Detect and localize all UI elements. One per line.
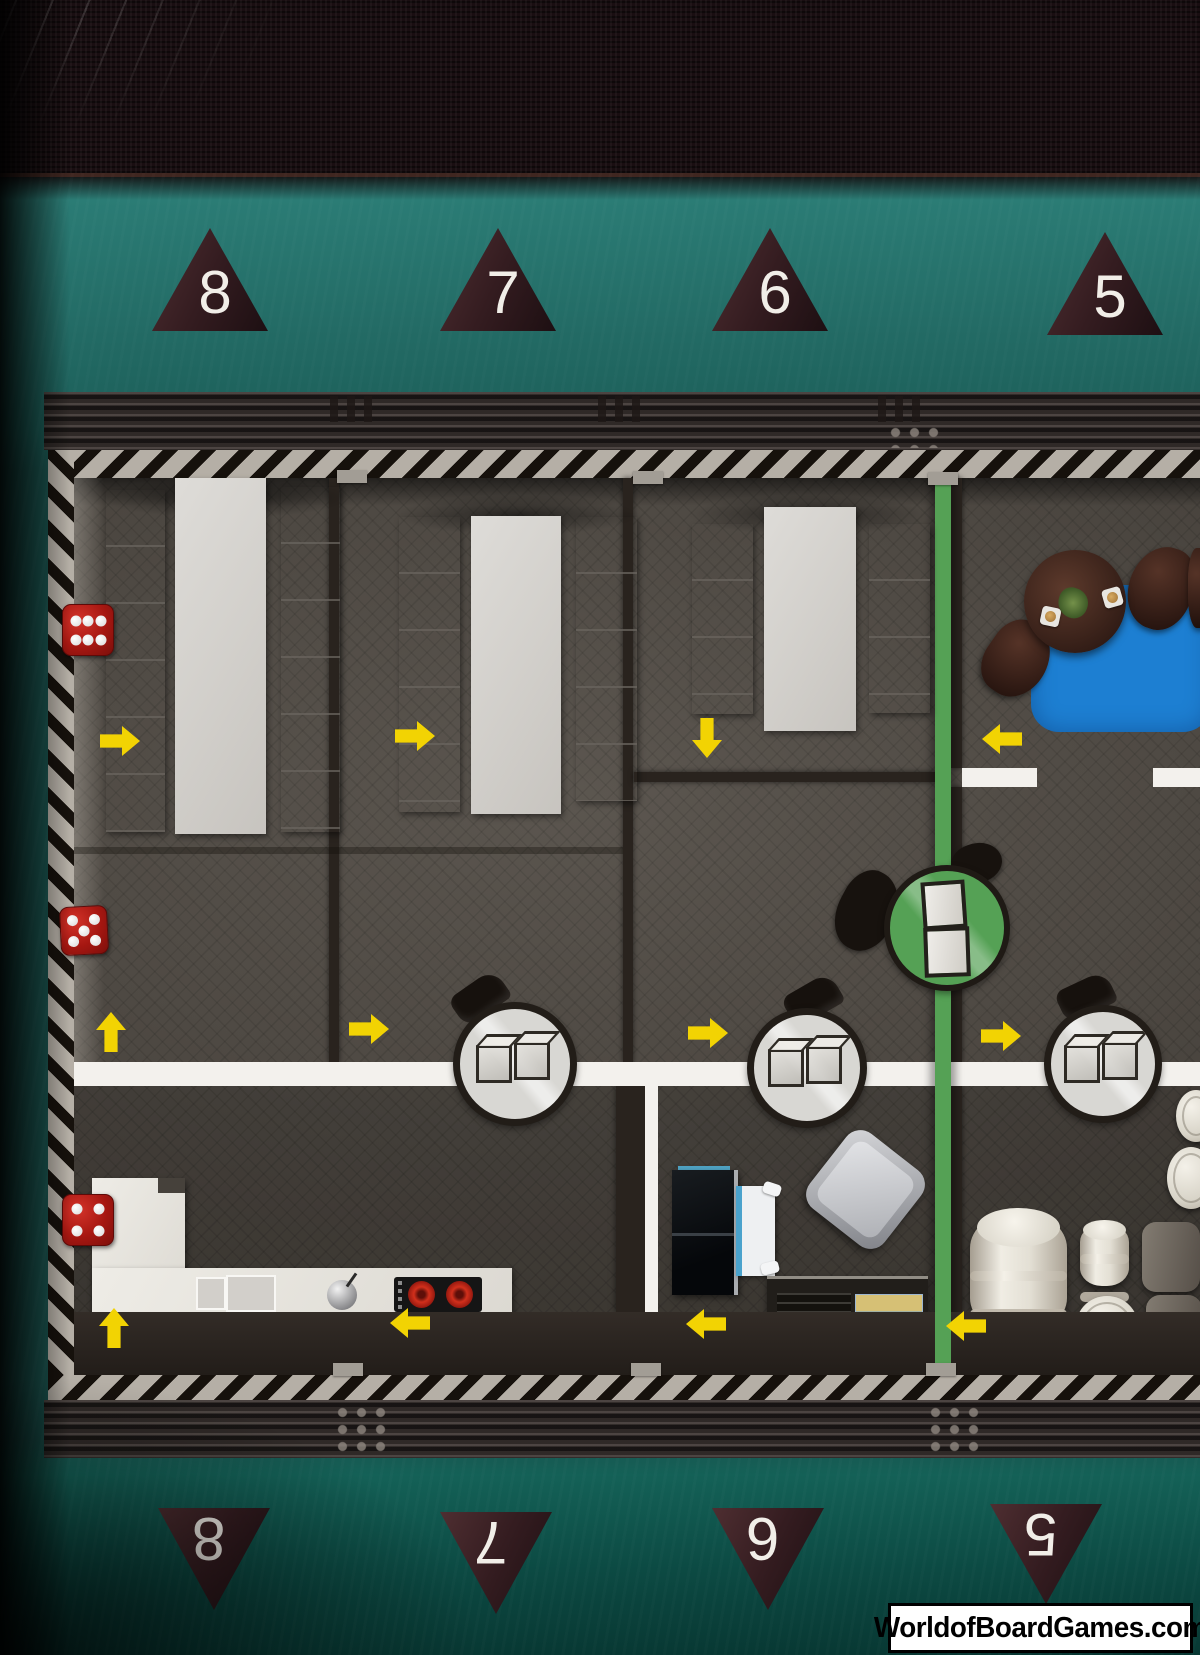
round-table-1	[453, 1002, 577, 1126]
door-notch	[333, 1363, 363, 1376]
corridor-right-b	[1153, 768, 1200, 787]
main-corridor	[74, 1062, 1200, 1086]
counter-notch	[158, 1178, 185, 1193]
bunk-shelf-wide	[471, 516, 561, 814]
watermark-text: WorldofBoardGames.com	[874, 1612, 1200, 1645]
deck-marker-label: 8	[192, 1508, 225, 1574]
wall-dorm-hall-faint	[74, 847, 623, 854]
red-die-6	[62, 604, 114, 656]
hazard-border-bottom	[48, 1375, 1200, 1400]
ridge-rivets	[926, 1404, 980, 1454]
cargo-cube	[514, 1042, 550, 1080]
deck-marker-label: 6	[758, 263, 791, 331]
cargo-cube	[768, 1049, 804, 1087]
door-notch	[926, 1363, 956, 1376]
bunk-shelf-wide	[764, 507, 856, 731]
watermark-box: WorldofBoardGames.com	[888, 1603, 1193, 1653]
corridor-vertical	[645, 1086, 658, 1312]
deck-marker-top-6: 6	[712, 228, 828, 331]
stove-burner	[408, 1281, 435, 1308]
wall-kitchen-cabin	[616, 1086, 645, 1312]
deck-marker-bottom-5: 5	[990, 1504, 1102, 1604]
deck-marker-top-5: 5	[1047, 232, 1163, 335]
wall-light-left	[74, 478, 104, 1078]
ridge-rivets	[886, 424, 944, 448]
cargo-cube	[806, 1046, 842, 1084]
box-edge-top	[0, 0, 1200, 177]
bunk-shelf	[399, 517, 460, 812]
deck-marker-label: 7	[486, 263, 519, 331]
ridge-vents	[330, 396, 380, 422]
bunk-shelf	[281, 487, 340, 832]
deck-marker-top-8: 8	[152, 228, 268, 331]
red-die-4	[62, 1194, 114, 1246]
corridor-right-a	[962, 768, 1037, 787]
faucet	[327, 1280, 357, 1310]
bunk-shelf	[106, 490, 165, 832]
wall-dorm3-hall	[634, 772, 935, 782]
cargo-cube	[1102, 1042, 1138, 1080]
cargo-cube	[1064, 1045, 1100, 1083]
bunk-shelf-wide	[175, 478, 266, 834]
shrinkwrap-glare	[0, 0, 300, 130]
board-ridge-bottom	[44, 1400, 1200, 1458]
elevator-stripe-bottom	[935, 1312, 951, 1366]
deck-marker-top-7: 7	[440, 228, 556, 331]
deck-marker-label: 5	[1093, 267, 1126, 335]
dark-cabinet	[672, 1170, 738, 1295]
door-notch	[633, 471, 663, 484]
stove-knobs	[398, 1281, 402, 1309]
ridge-rivets	[333, 1404, 387, 1454]
stove-burner	[446, 1281, 473, 1308]
deck-marker-label: 5	[1024, 1504, 1057, 1570]
deck-marker-label: 8	[198, 263, 231, 331]
ridge-vents	[598, 396, 648, 422]
deck-marker-label: 7	[474, 1512, 507, 1578]
door-notch	[928, 472, 958, 485]
sink-basin	[226, 1275, 276, 1312]
bunk-shelf	[869, 524, 930, 713]
lounge-chair-partial	[1188, 548, 1200, 628]
deck-marker-bottom-7: 7	[440, 1512, 552, 1614]
bunk-shelf	[576, 517, 637, 801]
coffee-cup	[1039, 605, 1062, 628]
barrel-small	[1080, 1224, 1129, 1286]
hazard-border-top	[48, 450, 1200, 478]
sink-basin	[196, 1277, 226, 1310]
board-game-photo: 8 7 6 5	[0, 0, 1200, 1655]
door-notch	[337, 470, 367, 483]
deck-marker-bottom-6: 6	[712, 1508, 824, 1610]
elevator-circle	[884, 865, 1010, 991]
crate	[1142, 1222, 1200, 1292]
deck-marker-label: 6	[746, 1508, 779, 1574]
cargo-box	[920, 880, 967, 931]
bunk-shelf	[692, 524, 753, 714]
cargo-cube	[476, 1045, 512, 1083]
door-notch	[631, 1363, 661, 1376]
deck-marker-bottom-8: 8	[158, 1508, 270, 1610]
ridge-vents	[878, 396, 928, 422]
stove	[394, 1277, 482, 1312]
round-table-3	[1044, 1005, 1162, 1123]
cargo-box	[923, 926, 971, 978]
round-table-2	[747, 1008, 867, 1128]
red-die-5	[59, 905, 109, 956]
